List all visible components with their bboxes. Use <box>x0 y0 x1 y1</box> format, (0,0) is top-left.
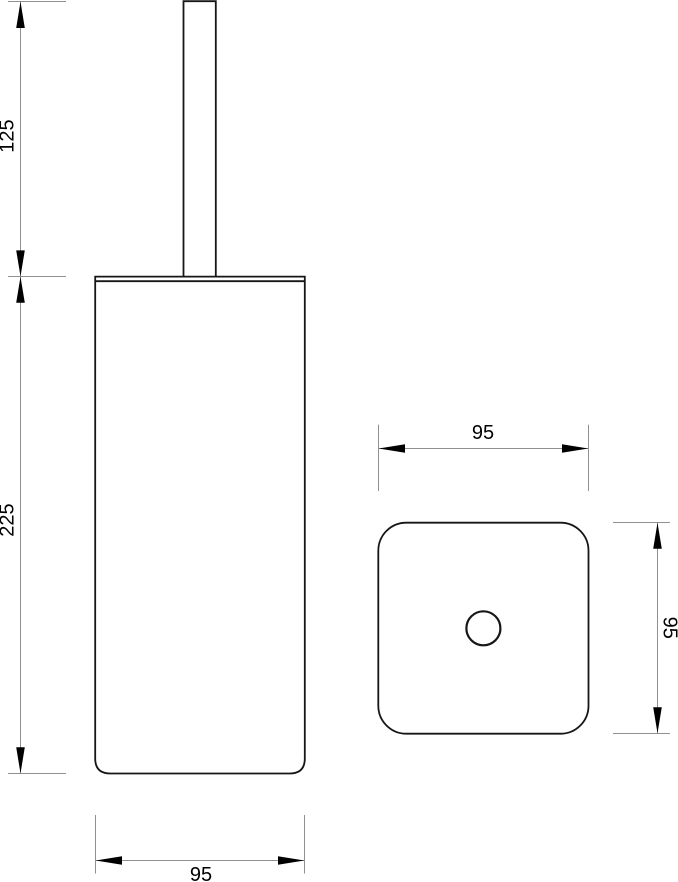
svg-text:95: 95 <box>472 422 494 444</box>
svg-text:95: 95 <box>190 864 212 882</box>
svg-text:125: 125 <box>0 119 19 152</box>
svg-text:95: 95 <box>659 617 678 639</box>
svg-text:225: 225 <box>0 503 19 536</box>
